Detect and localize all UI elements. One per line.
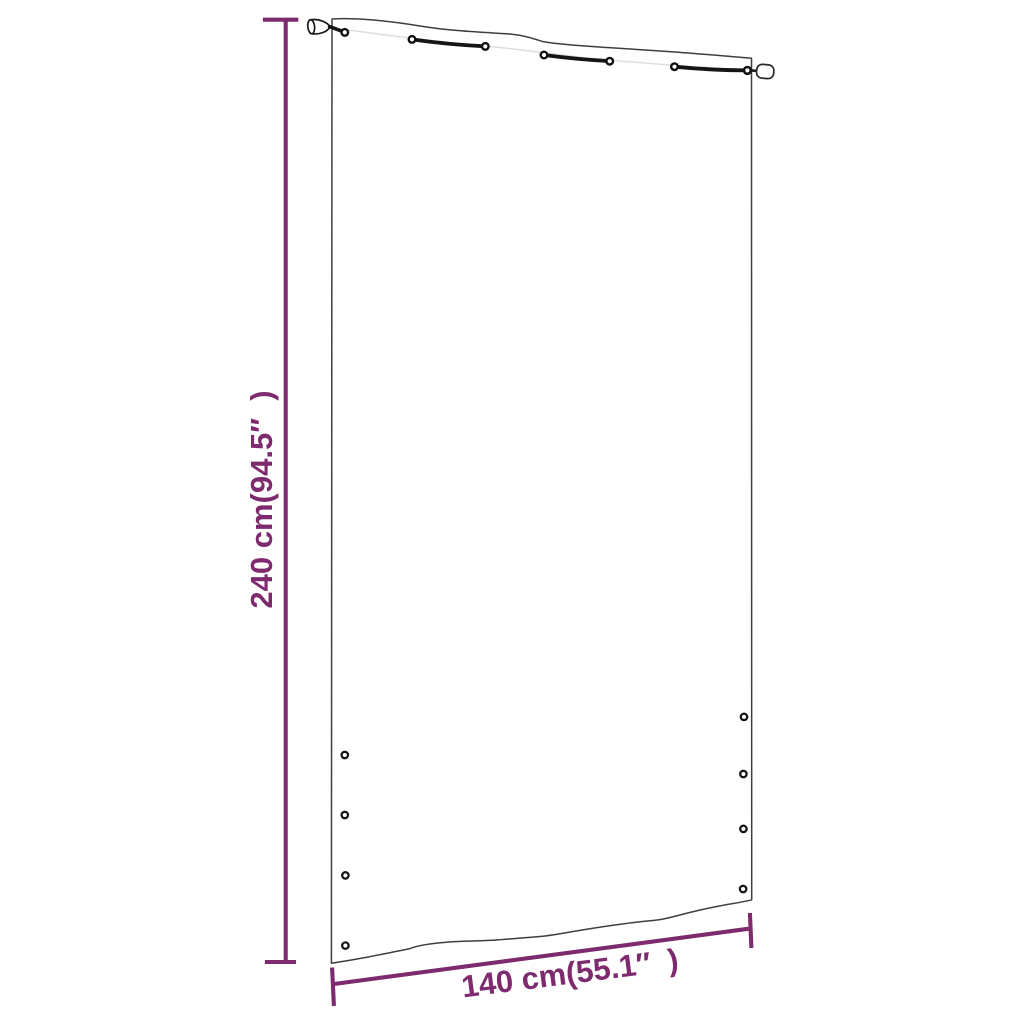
svg-text:240 cm(94.5″ ): 240 cm(94.5″ ): [244, 390, 279, 608]
